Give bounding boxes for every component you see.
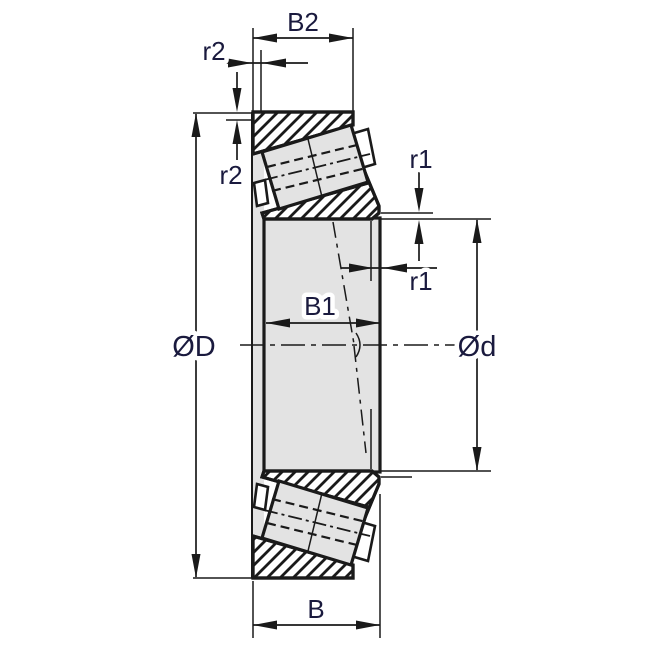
tapered-roller-bearing-diagram: B2 r2 r2 ØD Ød r1 r1 B1 B xyxy=(0,0,670,670)
label-cup-chamfer-left: r2 xyxy=(219,160,242,190)
cage-small-end-bottom xyxy=(254,484,268,510)
label-bore-diameter: Ød xyxy=(458,331,497,363)
cage-small-end-top xyxy=(254,180,268,206)
dim-cup-width-B2: B2 xyxy=(253,7,353,111)
dim-cup-chamfer-r2-vertical: r2 xyxy=(219,72,242,190)
label-cup-width: B2 xyxy=(287,7,319,37)
dim-outer-diameter-OD: ØD xyxy=(172,113,216,578)
dim-cup-chamfer-r2-horizontal: r2 xyxy=(202,36,308,68)
label-cone-chamfer-right: r1 xyxy=(409,266,432,296)
label-cone-chamfer-top: r1 xyxy=(409,144,432,174)
dim-r1v-arrows xyxy=(415,188,424,244)
label-outer-diameter: ØD xyxy=(172,331,216,363)
bearing-drawing-canvas: B2 r2 r2 ØD Ød r1 r1 B1 B xyxy=(0,0,670,670)
label-cup-chamfer-top: r2 xyxy=(202,36,225,66)
label-total-width: B xyxy=(307,594,324,624)
dim-cone-chamfer-r1-vertical: r1 xyxy=(409,144,432,261)
dim-bore-diameter-Od: Ød xyxy=(458,219,497,471)
dim-r2v-arrows xyxy=(233,88,242,144)
label-cone-width: B1 xyxy=(304,291,336,321)
